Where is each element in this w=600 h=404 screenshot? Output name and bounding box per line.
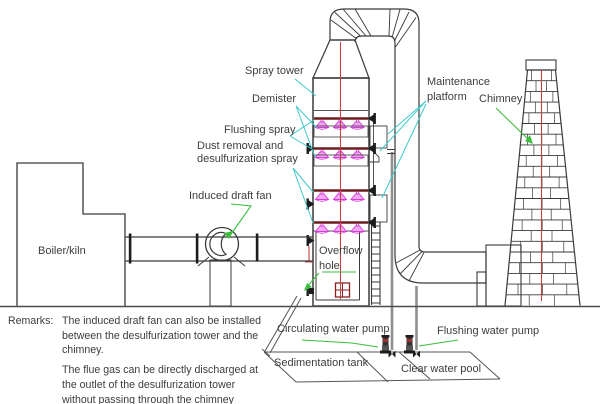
ladder-rungs xyxy=(372,226,381,303)
water-pumps xyxy=(380,335,420,358)
inlet-duct xyxy=(125,237,313,261)
tower-internals xyxy=(307,113,376,246)
label-dust-removal-spray: Dust removal and desulfurization spray xyxy=(197,140,298,166)
pump-riser-pipes xyxy=(392,152,417,350)
outlet-duct xyxy=(330,9,486,283)
label-demister: Demister xyxy=(252,93,296,106)
ladder-rails xyxy=(372,222,381,305)
label-flushing-spray: Flushing spray xyxy=(224,124,296,137)
remarks-text: The induced draft fan can also be instal… xyxy=(62,314,312,404)
label-spray-tower: Spray tower xyxy=(245,65,304,78)
label-induced-draft-fan: Induced draft fan xyxy=(189,190,272,203)
label-flushing-water-pump: Flushing water pump xyxy=(437,325,539,338)
remarks-block: Remarks: The induced draft fan can also … xyxy=(8,314,312,404)
diagram-stage: Spray tower Demister Flushing spray Dust… xyxy=(0,0,600,404)
remarks-heading: Remarks: xyxy=(8,314,62,404)
label-boiler-kiln: Boiler/kiln xyxy=(38,245,86,258)
chimney-breeching xyxy=(477,245,521,306)
overflow-drain-symbol xyxy=(336,283,350,297)
label-overflow-hole: Overflow hole xyxy=(319,244,362,274)
remarks-paragraph-1: The induced draft fan can also be instal… xyxy=(62,314,312,358)
label-clear-water-pool: Clear water pool xyxy=(401,363,481,376)
duct-flanges xyxy=(129,234,259,264)
fan-pedestal xyxy=(210,260,231,306)
label-chimney: Chimney xyxy=(479,93,522,106)
induced-draft-fan-symbol xyxy=(198,228,245,307)
remarks-paragraph-2: The flue gas can be directly discharged … xyxy=(62,363,312,404)
boiler-kiln-structure xyxy=(17,163,125,306)
